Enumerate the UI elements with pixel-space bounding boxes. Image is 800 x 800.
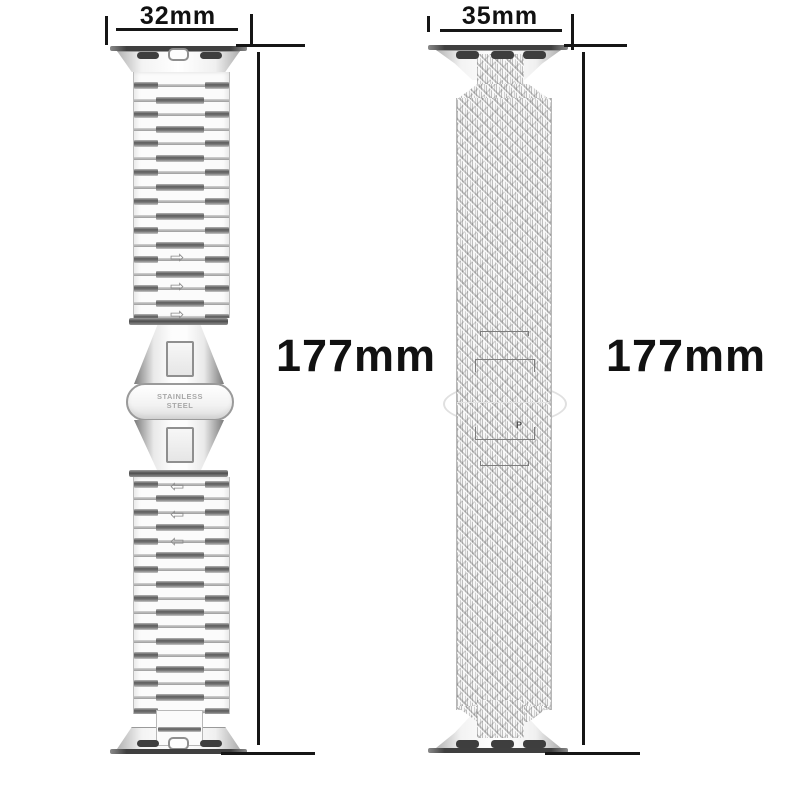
right-width-tick-left [427,16,430,32]
left-width-tick-left [105,16,108,45]
edge-link-bar [134,538,158,545]
edge-link-bar [134,140,158,147]
center-link-bar [156,184,204,191]
center-link-bar [156,694,204,701]
edge-link-bar [205,481,229,488]
clasp-outline-upper-bracket [475,359,535,372]
right-top-adapter-slot-1 [456,51,479,59]
center-link-bar [156,213,204,220]
left-bottom-adapter-slot-right [200,740,222,747]
clasp-outline-lower-bracket [475,427,535,440]
edge-link-bar [205,169,229,176]
right-width-dimension-line [440,29,562,32]
edge-link-bar [134,708,158,714]
left-top-adapter-slot-left [137,52,159,59]
edge-link-bar [205,652,229,659]
edge-link-bar [134,566,158,573]
edge-link-bar [205,140,229,147]
center-link-bar [156,524,204,531]
left-clasp-upper-window [166,341,194,377]
edge-link-bar [205,680,229,687]
adjust-arrow-left-icon: ⇦ [170,535,184,549]
left-top-adapter-slot-right [200,52,222,59]
edge-link-bar [205,111,229,118]
center-link-bar [156,609,204,616]
left-length-dimension-line [257,52,260,745]
edge-link-bar [134,509,158,516]
left-band-width-label: 32mm [128,2,228,31]
left-length-tick-top [236,44,305,47]
left-bottom-end-link-bar [158,727,201,732]
center-link-bar [156,155,204,162]
left-top-adapter-button [168,48,189,61]
center-link-bar [156,126,204,133]
edge-link-bar [205,509,229,516]
center-link-bar [156,638,204,645]
right-bottom-adapter-slot-3 [523,740,546,748]
edge-link-bar [134,111,158,118]
edge-link-bar [205,708,229,714]
edge-link-bar [134,285,158,292]
right-band-length-label: 177mm [596,330,776,382]
edge-link-bar [134,227,158,234]
edge-link-bar [205,623,229,630]
edge-link-bar [205,285,229,292]
left-width-tick-right [250,14,253,46]
edge-link-bar [134,82,158,89]
right-top-adapter-slot-3 [523,51,546,59]
left-band-length-label: 177mm [266,330,446,382]
left-clasp-oval: STAINLESS STEEL [126,383,234,421]
right-length-dimension-line [582,52,585,745]
clasp-outline-bottom-notch [480,461,529,466]
center-link-bar [156,552,204,559]
left-width-dimension-line [116,28,238,31]
center-link-bar [156,97,204,104]
edge-link-bar [205,595,229,602]
edge-link-bar [134,623,158,630]
edge-link-bar [134,595,158,602]
center-link-bar [156,666,204,673]
edge-link-bar [205,198,229,205]
right-length-tick-bottom [545,752,640,755]
edge-link-bar [205,227,229,234]
clasp-p-mark: P [516,420,522,430]
right-top-adapter-slot-2 [491,51,514,59]
watch-band-dimension-diagram: 32mm STAINLESS STEEL 177mm 35mm [0,0,800,800]
clasp-engraving-line1: STAINLESS [128,392,232,401]
clasp-center-line [457,402,549,403]
right-bottom-adapter-slot-2 [491,740,514,748]
left-clasp-lower-window [166,427,194,463]
left-length-tick-bottom [221,752,315,755]
right-top-adapter-bar [428,45,568,50]
edge-link-bar [205,566,229,573]
clasp-engraving-line2: STEEL [128,401,232,410]
edge-link-bar [134,256,158,263]
left-bottom-adapter-slot-left [137,740,159,747]
edge-link-bar [134,652,158,659]
right-length-tick-top [564,44,627,47]
right-band-mesh-strap [456,98,552,710]
edge-link-bar [134,198,158,205]
adjust-arrow-right-icon: ⇨ [170,251,184,265]
clasp-outline-top-notch [480,331,529,336]
adjust-arrow-left-icon: ⇦ [170,480,184,494]
edge-link-bar [205,538,229,545]
adjust-arrow-left-icon: ⇦ [170,508,184,522]
edge-link-bar [134,169,158,176]
adjust-arrow-right-icon: ⇨ [170,280,184,294]
center-link-bar [156,581,204,588]
right-bottom-adapter-slot-1 [456,740,479,748]
right-bottom-mesh-neck [477,700,524,738]
edge-link-bar [205,256,229,263]
left-clasp-lower-junction [129,470,228,477]
adjust-arrow-right-icon: ⇨ [170,308,184,322]
edge-link-bar [134,481,158,488]
right-band-width-label: 35mm [450,2,550,31]
edge-link-bar [134,680,158,687]
edge-link-bar [205,82,229,89]
